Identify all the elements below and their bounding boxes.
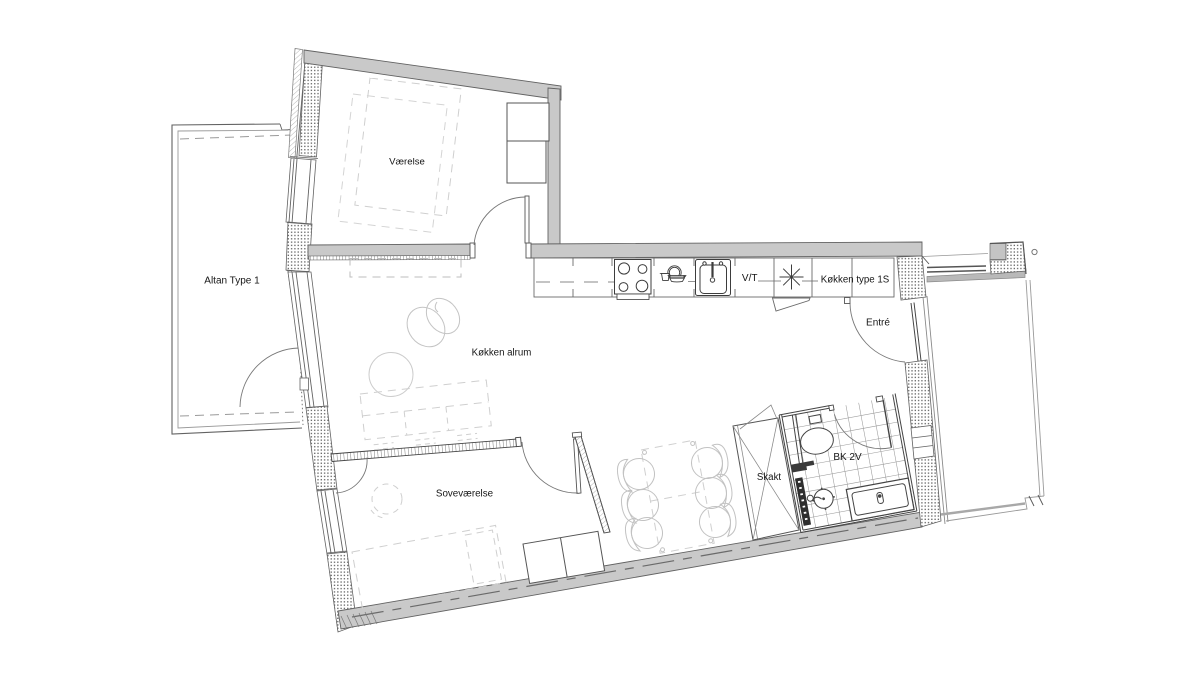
svg-text:V/T: V/T [742, 273, 758, 284]
svg-text:Værelse: Værelse [389, 157, 425, 168]
svg-text:Køkken type 1S: Køkken type 1S [821, 275, 890, 286]
svg-text:Soveværelse: Soveværelse [436, 489, 494, 500]
svg-text:Entré: Entré [866, 318, 890, 329]
svg-text:Skakt: Skakt [757, 472, 782, 483]
svg-text:Altan Type 1: Altan Type 1 [204, 276, 260, 287]
svg-text:BK 2V: BK 2V [833, 452, 862, 463]
svg-text:Køkken alrum: Køkken alrum [472, 348, 532, 359]
